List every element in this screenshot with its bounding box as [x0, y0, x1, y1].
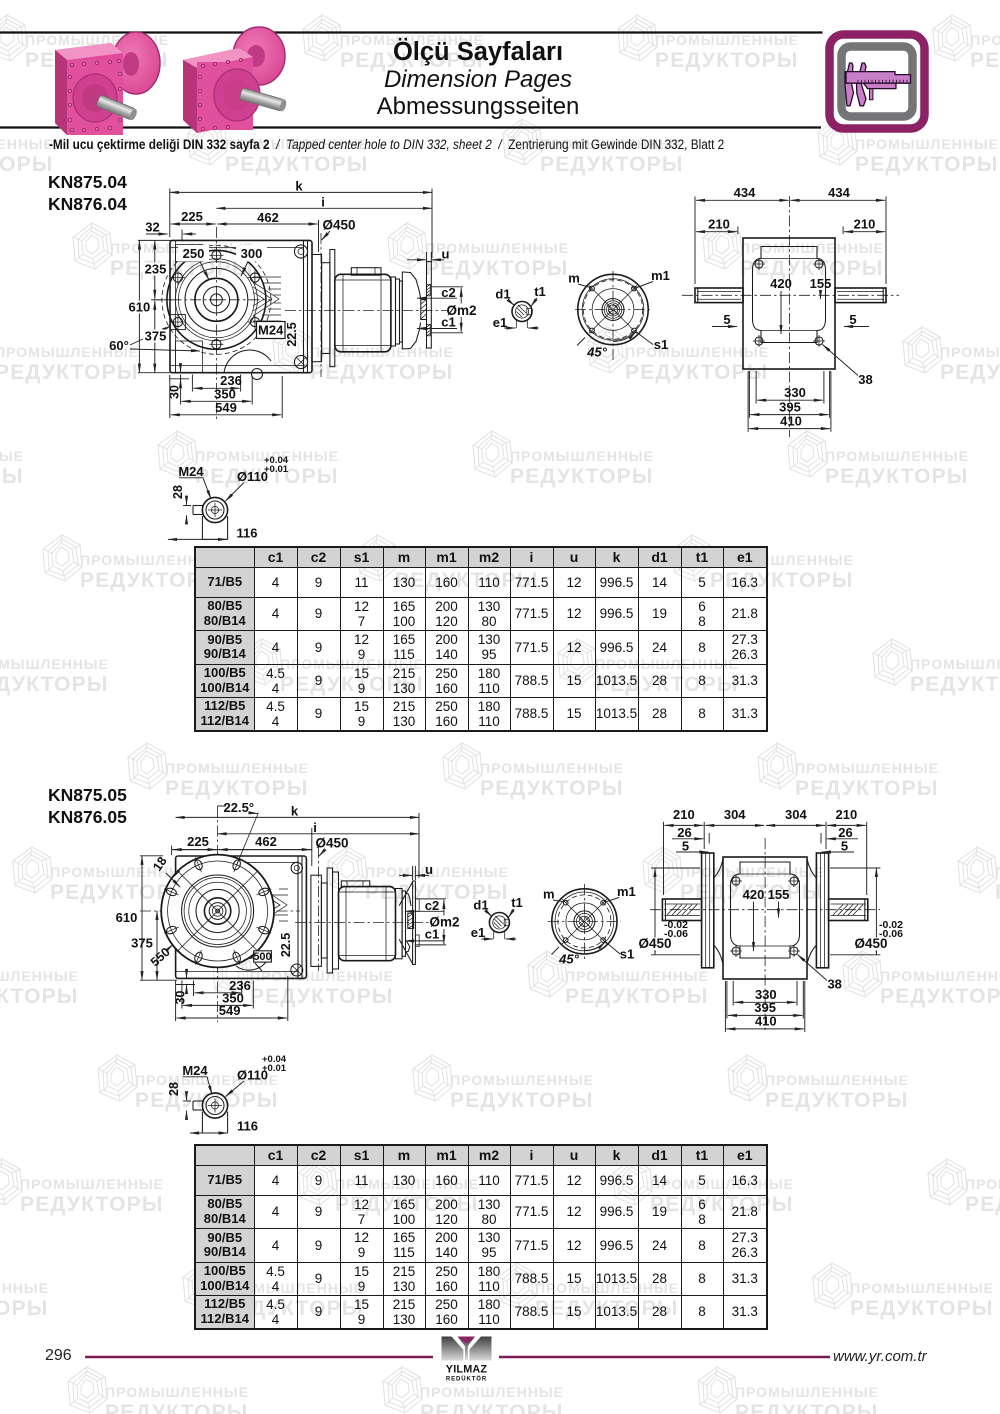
svg-text:Ø450: Ø450 [638, 936, 671, 951]
svg-text:m1: m1 [617, 884, 636, 899]
svg-text:+0.01: +0.01 [264, 464, 289, 475]
svg-text:210: 210 [854, 217, 876, 232]
svg-text:155: 155 [768, 887, 790, 902]
svg-text:28: 28 [167, 1082, 181, 1096]
svg-text:22.5: 22.5 [279, 933, 293, 957]
svg-text:t1: t1 [534, 284, 546, 299]
svg-text:Øm2: Øm2 [429, 915, 459, 930]
svg-text:225: 225 [181, 209, 203, 224]
svg-text:M24: M24 [182, 1063, 208, 1078]
svg-text:38: 38 [858, 372, 872, 387]
svg-text:s1: s1 [654, 337, 668, 352]
svg-text:s1: s1 [620, 947, 634, 962]
svg-text:d1: d1 [473, 898, 488, 913]
svg-text:+0.01: +0.01 [262, 1063, 287, 1074]
svg-text:60°: 60° [109, 338, 129, 353]
svg-text:k: k [295, 179, 303, 194]
svg-text:330: 330 [784, 385, 806, 400]
svg-text:210: 210 [708, 217, 730, 232]
svg-text:Øm2: Øm2 [446, 303, 476, 318]
svg-text:38: 38 [827, 977, 841, 992]
svg-text:c2: c2 [425, 898, 439, 913]
svg-text:5: 5 [849, 312, 856, 327]
svg-text:m1: m1 [651, 268, 670, 283]
svg-text:32: 32 [145, 220, 159, 235]
svg-text:Ø450: Ø450 [854, 936, 887, 951]
svg-text:e1: e1 [471, 925, 485, 940]
svg-text:462: 462 [255, 834, 277, 849]
svg-text:549: 549 [219, 1003, 241, 1018]
svg-text:m: m [568, 271, 580, 286]
svg-text:45°: 45° [558, 952, 579, 967]
svg-text:375: 375 [131, 936, 153, 951]
svg-text:5: 5 [723, 312, 730, 327]
svg-text:28: 28 [171, 485, 185, 499]
svg-text:t1: t1 [511, 895, 523, 910]
svg-text:m: m [543, 887, 555, 902]
svg-text:116: 116 [237, 526, 258, 541]
svg-text:155: 155 [810, 276, 832, 291]
svg-text:22.5: 22.5 [285, 322, 299, 346]
svg-text:u: u [442, 247, 450, 262]
svg-text:116: 116 [237, 1119, 258, 1134]
svg-text:610: 610 [116, 910, 138, 925]
svg-text:45°: 45° [586, 345, 607, 360]
svg-text:304: 304 [724, 807, 746, 822]
svg-text:410: 410 [780, 414, 802, 429]
svg-text:250: 250 [183, 246, 205, 261]
svg-text:462: 462 [257, 210, 279, 225]
svg-text:375: 375 [145, 329, 167, 344]
svg-text:YILMAZ: YILMAZ [446, 1364, 488, 1376]
svg-text:420: 420 [770, 276, 792, 291]
svg-text:i: i [321, 195, 325, 210]
svg-text:i: i [313, 820, 317, 835]
svg-text:235: 235 [145, 262, 167, 277]
svg-text:225: 225 [187, 834, 209, 849]
svg-text:d1: d1 [495, 287, 510, 302]
svg-text:549: 549 [215, 400, 237, 415]
svg-text:M24: M24 [258, 323, 284, 338]
svg-text:u: u [425, 862, 433, 877]
svg-text:c2: c2 [441, 285, 455, 300]
svg-text:410: 410 [755, 1014, 777, 1029]
svg-text:k: k [291, 804, 299, 819]
svg-text:420: 420 [743, 887, 765, 902]
svg-text:500: 500 [253, 951, 271, 963]
svg-text:5: 5 [682, 839, 689, 854]
svg-text:M24: M24 [178, 464, 204, 479]
svg-text:434: 434 [828, 185, 850, 200]
svg-text:22.5°: 22.5° [224, 800, 255, 815]
svg-text:304: 304 [785, 807, 807, 822]
svg-text:210: 210 [673, 807, 695, 822]
svg-text:Ø450: Ø450 [322, 218, 355, 233]
svg-text:210: 210 [836, 807, 858, 822]
svg-text:5: 5 [841, 839, 848, 854]
svg-text:610: 610 [129, 300, 151, 315]
svg-text:e1: e1 [493, 315, 507, 330]
svg-text:REDÜKTÖR: REDÜKTÖR [446, 1376, 487, 1383]
svg-text:Ø450: Ø450 [315, 836, 348, 851]
svg-text:300: 300 [241, 246, 263, 261]
svg-text:434: 434 [734, 185, 756, 200]
svg-text:395: 395 [779, 400, 801, 415]
